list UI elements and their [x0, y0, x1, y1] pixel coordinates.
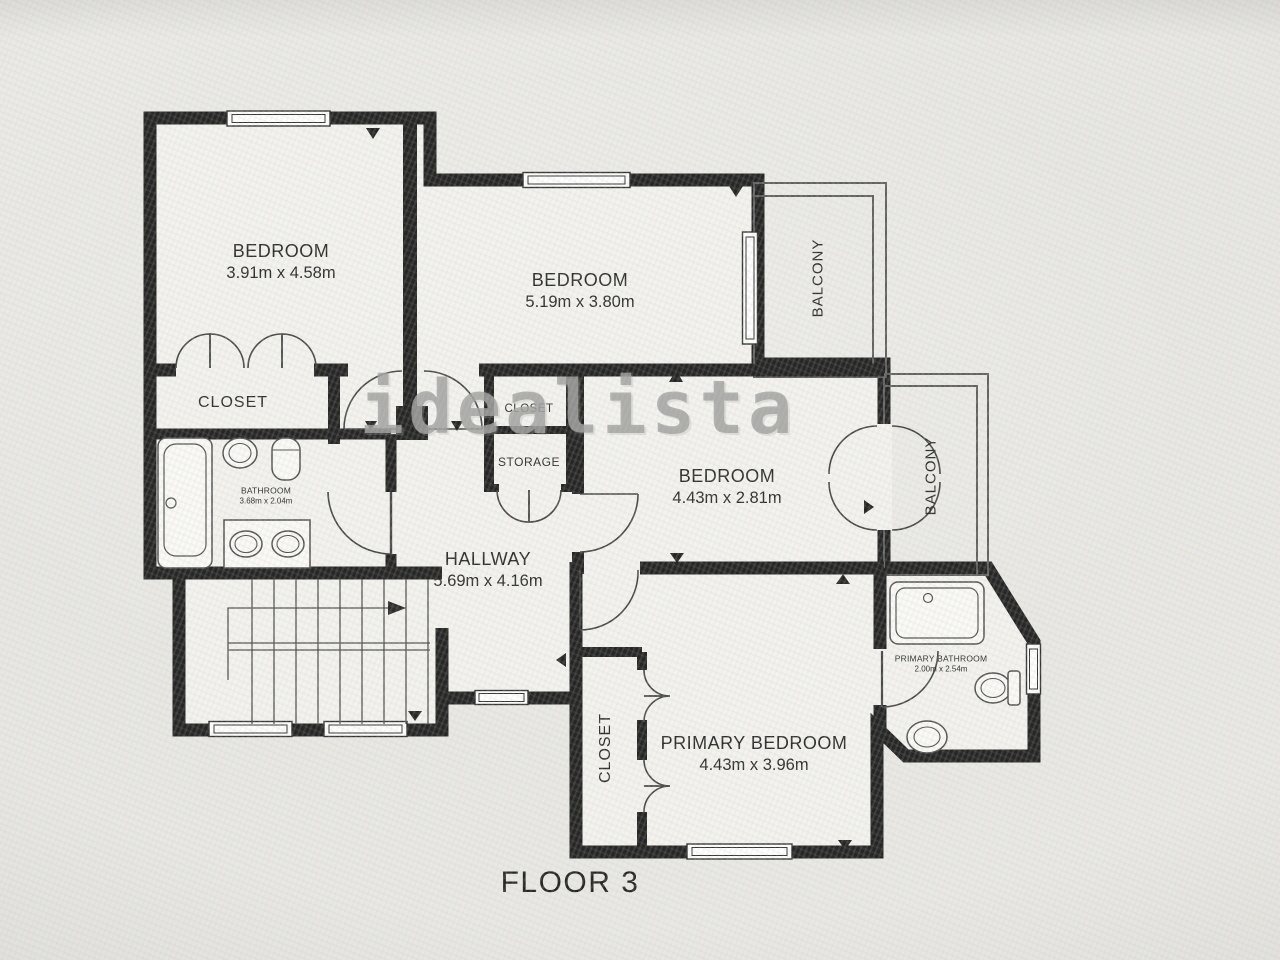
room-dimensions: 4.43m x 3.96m: [661, 754, 848, 776]
floor-title: FLOOR 3: [501, 866, 640, 900]
floor-plan-photo: BEDROOM 3.91m x 4.58m BEDROOM 5.19m x 3.…: [0, 0, 1280, 960]
room-name: BEDROOM: [672, 465, 781, 487]
room-label-hallway: HALLWAY 5.69m x 4.16m: [433, 548, 542, 592]
room-label-bathroom: BATHROOM 3.68m x 2.04m: [240, 486, 293, 507]
room-name: BEDROOM: [226, 240, 335, 262]
room-dimensions: 4.43m x 2.81m: [672, 487, 781, 509]
room-dimensions: 5.69m x 4.16m: [433, 570, 542, 592]
room-label-balcony-right: BALCONY: [923, 437, 940, 516]
room-name: PRIMARY BATHROOM: [895, 654, 987, 665]
room-name: HALLWAY: [433, 548, 542, 570]
room-label-storage: STORAGE: [498, 455, 560, 469]
room-dimensions: 3.91m x 4.58m: [226, 262, 335, 284]
room-label-bedroom-top-middle: BEDROOM 5.19m x 3.80m: [525, 269, 634, 313]
room-dimensions: 5.19m x 3.80m: [525, 291, 634, 313]
room-label-balcony-top: BALCONY: [810, 239, 827, 318]
room-label-primary-closet: CLOSET: [597, 713, 615, 783]
room-name: BATHROOM: [240, 486, 293, 497]
room-name: PRIMARY BEDROOM: [661, 732, 848, 754]
room-label-closet-top-left: CLOSET: [198, 394, 268, 412]
room-label-bedroom-middle-right: BEDROOM 4.43m x 2.81m: [672, 465, 781, 509]
room-dimensions: 3.68m x 2.04m: [240, 497, 293, 507]
room-dimensions: 2.00m x 2.54m: [895, 665, 987, 675]
labels-layer: BEDROOM 3.91m x 4.58m BEDROOM 5.19m x 3.…: [0, 0, 1280, 960]
room-name: BEDROOM: [525, 269, 634, 291]
room-label-primary-bedroom: PRIMARY BEDROOM 4.43m x 3.96m: [661, 732, 848, 776]
room-label-primary-bathroom: PRIMARY BATHROOM 2.00m x 2.54m: [895, 654, 987, 675]
watermark: idealista: [360, 365, 797, 451]
room-label-bedroom-top-left: BEDROOM 3.91m x 4.58m: [226, 240, 335, 284]
